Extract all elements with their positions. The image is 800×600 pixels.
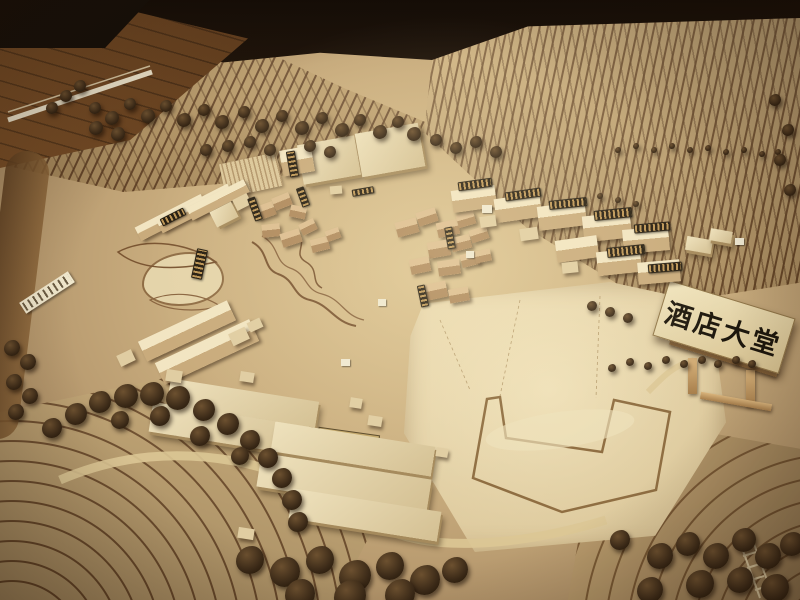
model-building: [261, 223, 280, 238]
model-building: [349, 397, 362, 409]
small-white-marker: [341, 359, 350, 366]
tree-cluster: [761, 574, 789, 600]
tree-cluster: [637, 577, 663, 600]
model-building: [237, 527, 255, 540]
model-building: [519, 227, 538, 241]
model-building: [239, 371, 254, 383]
sign-stand-leg: [688, 358, 697, 394]
model-building: [561, 261, 578, 274]
model-building: [437, 259, 461, 277]
small-white-marker: [735, 238, 744, 245]
model-building: [435, 447, 448, 458]
tree-cluster: [780, 532, 800, 556]
model-building: [479, 215, 496, 228]
model-building: [165, 369, 183, 383]
small-white-marker: [466, 251, 474, 258]
model-building: [367, 415, 382, 427]
model-building: [330, 185, 343, 194]
small-white-marker: [482, 205, 492, 213]
model-photo: 酒店大堂 伍号楼 肆号楼: [0, 0, 800, 600]
small-white-marker: [378, 299, 386, 306]
